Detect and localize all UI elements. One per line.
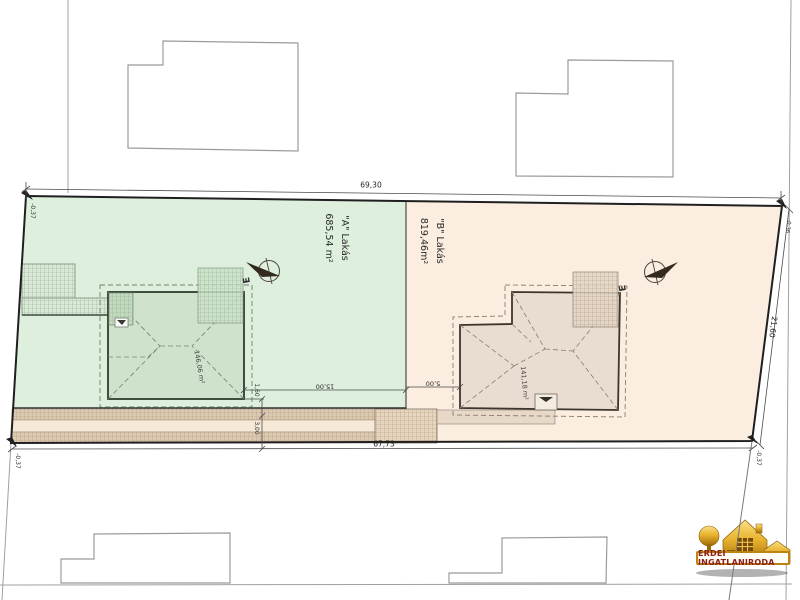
dimension-setback-b: 5,00 [426,380,440,387]
neighbor-building-bottom-center [449,537,607,583]
logo-banner: ERDEI INGATLANIRODA [696,551,790,565]
building-b-area-label: 141,18 m² [519,366,528,400]
dimension-right-side: 21,60 [768,316,778,338]
offset-top-right: -0,36 [783,219,790,234]
terrace-b-south [437,410,555,424]
dimension-rear: 67,73 [373,440,394,448]
offset-bottom-right: -0,37 [755,450,761,466]
road-edge-line [786,0,791,600]
dimension-setback-a: 15,00 [316,383,335,390]
offset-top-left: -0,37 [29,203,35,219]
offset-bottom-left: -0,37 [14,453,20,469]
parcel-a-name: "A" Lakás [336,213,352,262]
left-boundary-extension [2,443,11,600]
parcel-b-area: 819,46m² [415,218,431,264]
dimension-street-front: 69,30 [360,181,381,189]
site-plan-page: 69,30 67,73 21,60 -0,37 -0,37 -0,37 -0,3… [0,0,800,600]
logo-company-name: ERDEI INGATLANIRODA [698,549,788,567]
neighbor-building-top-left [128,41,298,151]
dimension-strip-width: 3,00 [253,421,259,434]
parcel-b-name: "B" Lakás [431,218,447,264]
neighbor-building-bottom-left [61,533,230,583]
dimension-eave-offset: 1,60 [253,383,259,396]
parcel-a-label: "A" Lakás 685,54 m² [320,213,352,262]
site-plan-drawing [0,0,800,600]
street-line [0,584,792,585]
parcel-b-label: "B" Lakás 819,46m² [415,218,447,264]
parcel-a-area: 685,54 m² [320,213,336,262]
logo-tree-icon [699,526,719,546]
neighbor-building-top-right [516,60,673,177]
